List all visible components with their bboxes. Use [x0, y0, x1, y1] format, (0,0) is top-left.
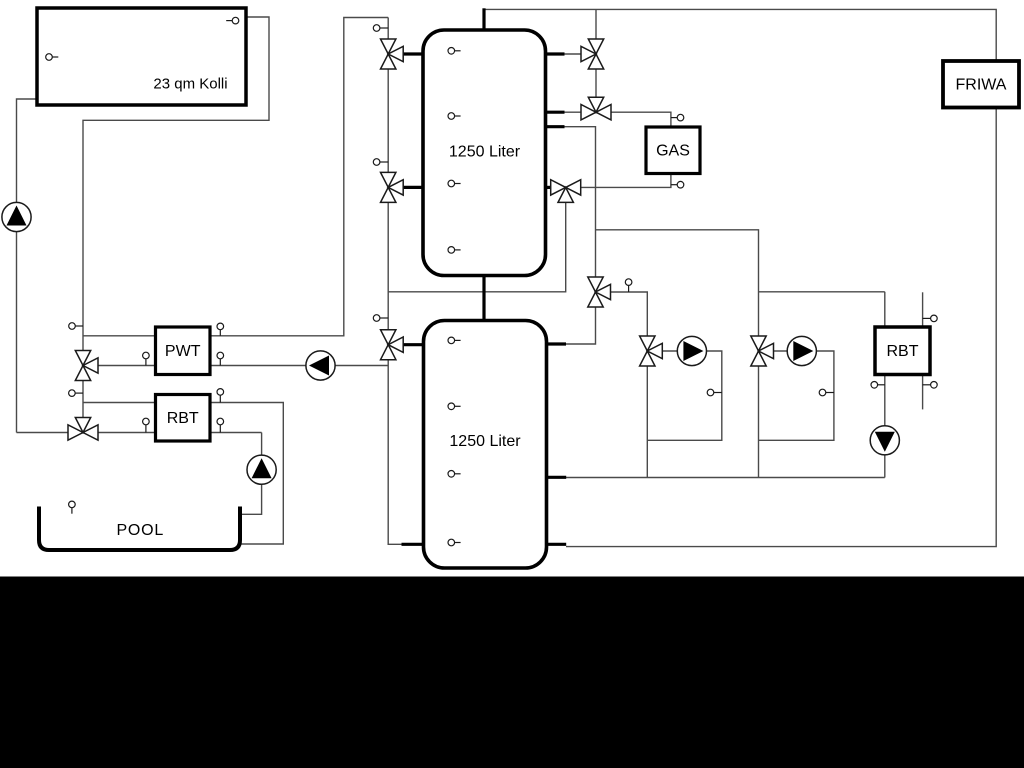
svg-text:POOL: POOL: [116, 522, 164, 539]
svg-text:FRIWA: FRIWA: [956, 77, 1007, 94]
svg-text:PWT: PWT: [165, 343, 201, 360]
svg-text:1250 Liter: 1250 Liter: [449, 143, 521, 160]
svg-text:1250 Liter: 1250 Liter: [449, 433, 521, 450]
svg-text:GAS: GAS: [656, 143, 690, 160]
svg-text:RBT: RBT: [167, 410, 199, 427]
svg-text:RBT: RBT: [887, 343, 919, 360]
svg-text:23 qm Kolli: 23 qm Kolli: [153, 76, 227, 93]
